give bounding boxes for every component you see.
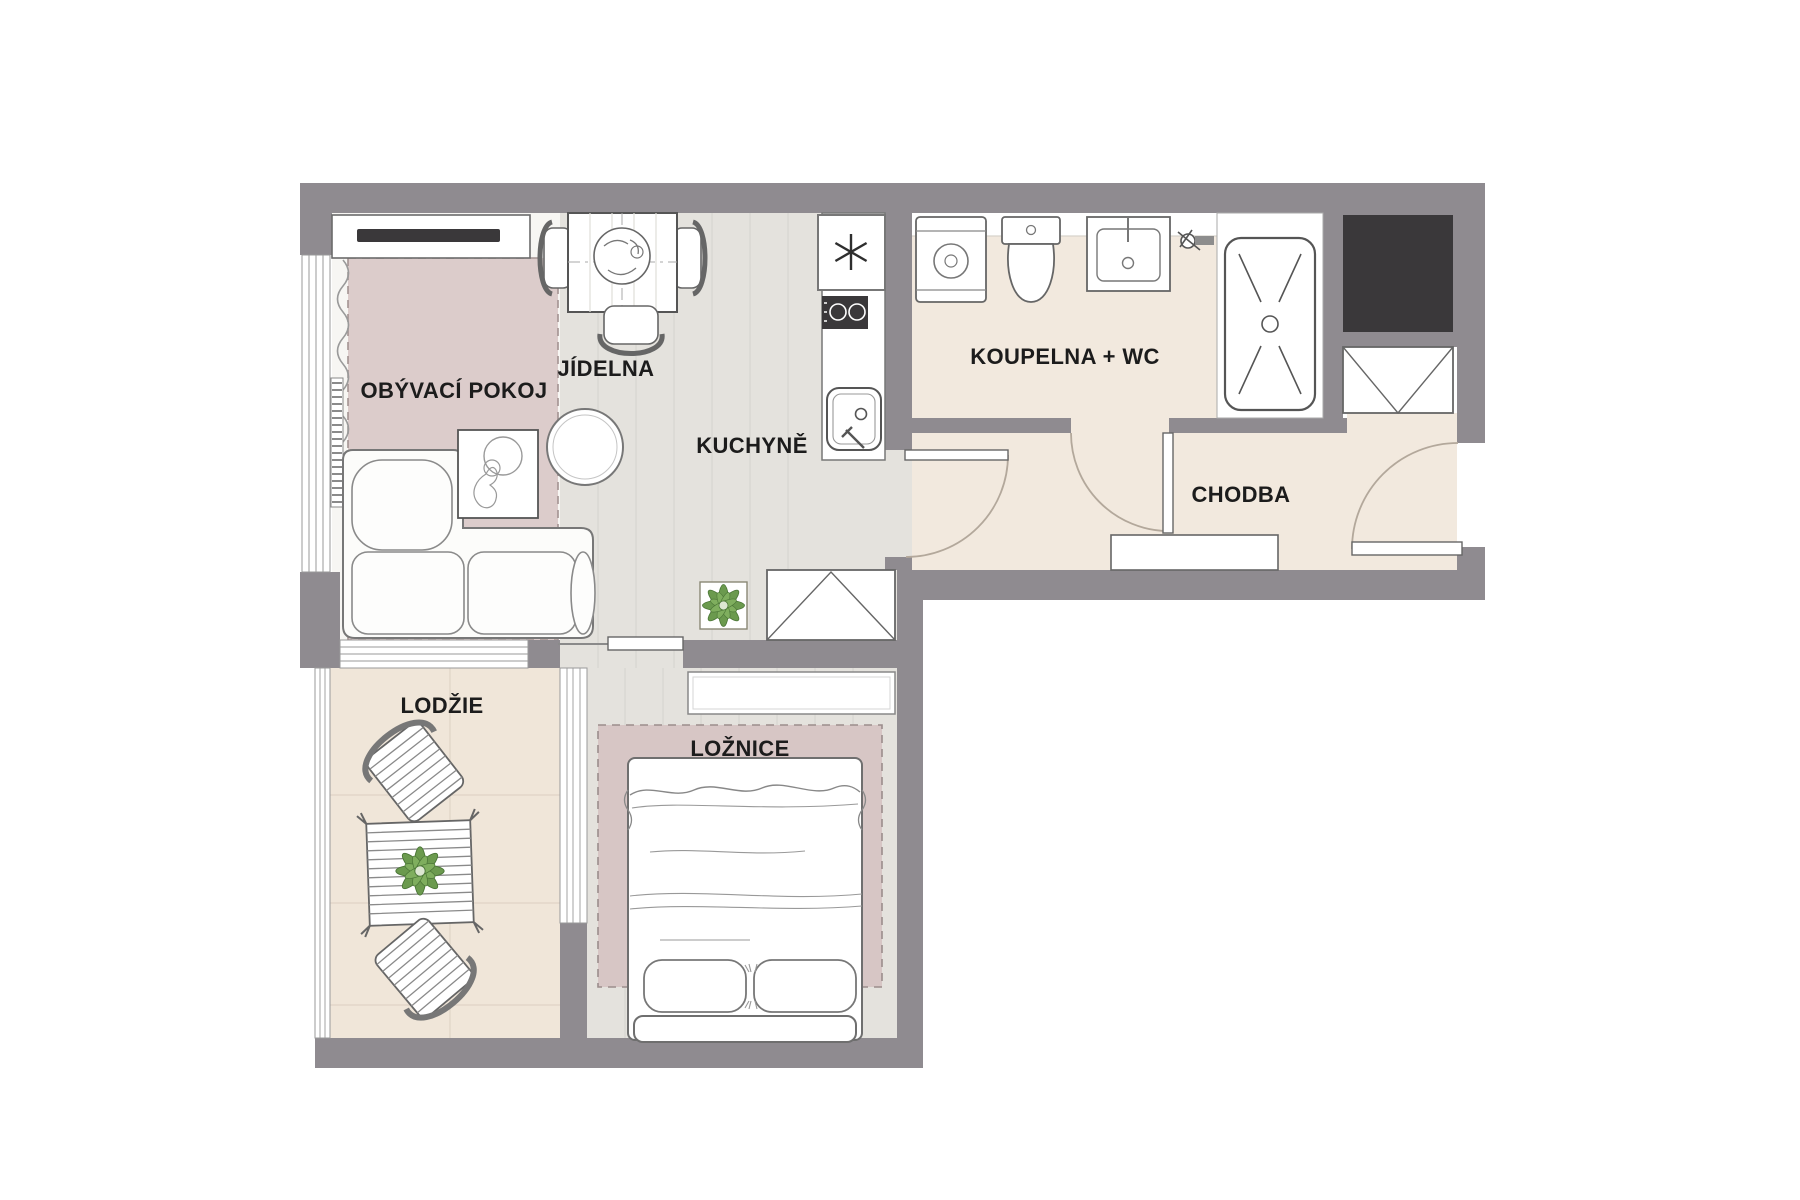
- wall-right-upper: [1457, 183, 1485, 443]
- shower-icon: [1217, 213, 1323, 418]
- bathroom-doorway-floor: [1071, 418, 1169, 433]
- wall-bathroom-hall-left: [912, 418, 1071, 433]
- tv-icon: [357, 229, 500, 242]
- kitchen-doorway-floor: [885, 450, 912, 557]
- room-label-bedroom: LOŽNICE: [690, 736, 789, 762]
- dining-table-icon: [568, 213, 677, 312]
- room-label-hallway: CHODBA: [1192, 482, 1291, 508]
- pillow-icon: [754, 960, 856, 1012]
- living-room-window-icon: [302, 255, 330, 572]
- room-label-dining: JÍDELNA: [558, 356, 655, 382]
- bench-icon: [1111, 535, 1278, 570]
- washbasin-icon: [1087, 217, 1170, 291]
- room-label-bathroom: KOUPELNA + WC: [970, 344, 1160, 370]
- wall-top: [300, 183, 1485, 213]
- wall-bathroom-hall-right: [1169, 418, 1347, 433]
- sideboard-icon: [332, 215, 530, 258]
- wall-bedroom-right: [897, 570, 923, 1068]
- wall-left-upper: [300, 213, 332, 255]
- entry-wardrobe-icon: [1343, 347, 1453, 413]
- shelf-icon: [688, 672, 895, 714]
- bed-icon: [625, 758, 866, 1042]
- round-side-table-icon: [547, 409, 623, 485]
- floor-plan-drawing: [0, 0, 1800, 1200]
- wall-window-pillar: [528, 640, 560, 668]
- wall-left-pillar: [300, 572, 340, 668]
- loggia-bedroom-window-icon: [560, 668, 587, 923]
- floor-plan-page: OBÝVACÍ POKOJ JÍDELNA KUCHYNĚ KOUPELNA +…: [0, 0, 1800, 1200]
- loggia-left-glazing-icon: [315, 668, 330, 1038]
- radiator-icon: [331, 378, 343, 507]
- wall-bottom-right-wing: [897, 570, 1485, 600]
- wardrobe-icon: [767, 570, 895, 640]
- room-label-living: OBÝVACÍ POKOJ: [361, 378, 548, 404]
- room-label-kitchen: KUCHYNĚ: [696, 433, 808, 459]
- wall-loggia-bedroom: [560, 923, 587, 1038]
- balcony-window-icon: [340, 640, 528, 668]
- wall-kitchen-bathroom: [885, 213, 912, 450]
- wall-bedroom-top: [683, 640, 897, 668]
- coffee-table-icon: [458, 430, 538, 518]
- room-label-loggia: LODŽIE: [400, 693, 483, 719]
- kitchen-sink-icon: [827, 388, 881, 450]
- cooktop-icon: [822, 296, 868, 329]
- plant-icon: [700, 582, 747, 629]
- pillow-icon: [644, 960, 746, 1012]
- washing-machine-icon: [916, 217, 986, 302]
- headboard-icon: [634, 1016, 856, 1042]
- fridge-snowflake-icon: [818, 215, 885, 290]
- shaft-icon: [1343, 215, 1453, 332]
- plant-icon: [396, 847, 444, 895]
